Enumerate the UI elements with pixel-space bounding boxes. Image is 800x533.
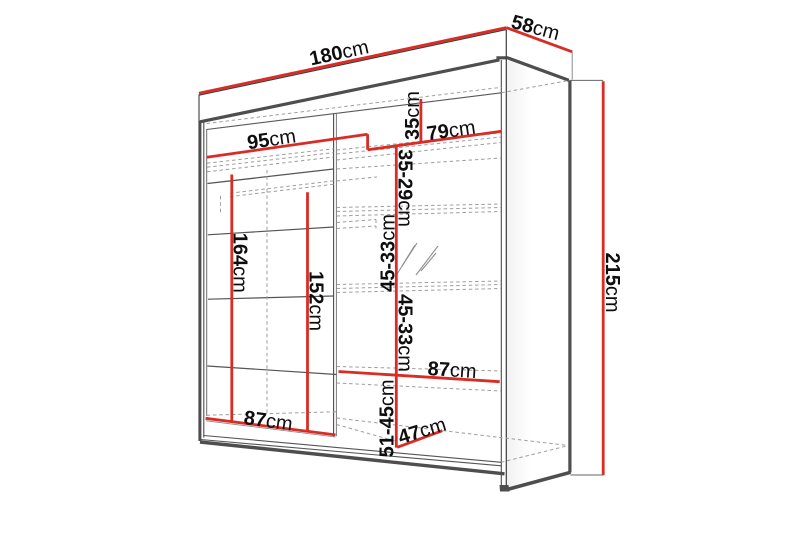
svg-text:164cm: 164cm [229, 233, 251, 293]
svg-text:79cm: 79cm [425, 117, 477, 146]
svg-text:35cm: 35cm [402, 91, 424, 140]
svg-text:45-33cm: 45-33cm [377, 214, 399, 292]
svg-text:152cm: 152cm [305, 271, 327, 331]
svg-text:47cm: 47cm [396, 414, 449, 449]
svg-text:58cm: 58cm [509, 11, 562, 45]
svg-text:87cm: 87cm [242, 407, 294, 436]
svg-text:95cm: 95cm [246, 125, 298, 154]
svg-text:215cm: 215cm [601, 252, 623, 312]
svg-text:87cm: 87cm [427, 358, 477, 383]
svg-text:45-33cm: 45-33cm [393, 294, 415, 372]
svg-text:51-45cm: 51-45cm [377, 379, 399, 457]
